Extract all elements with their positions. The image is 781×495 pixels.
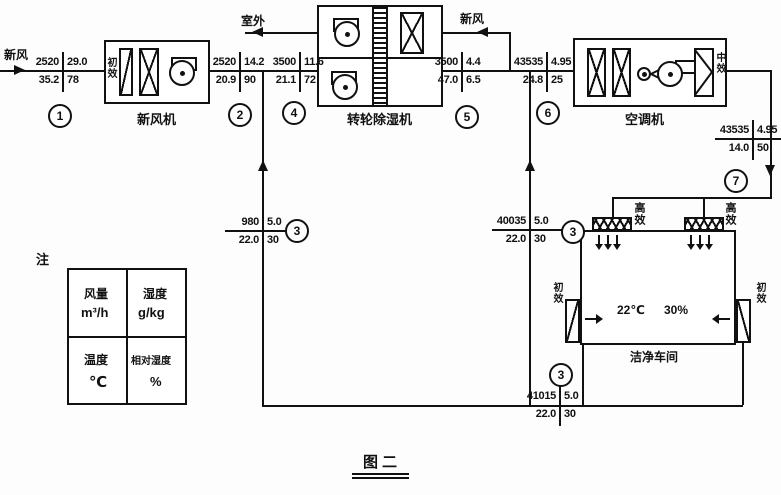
hepa-filter-label: 高效 [633, 202, 645, 226]
legend-row-divider [67, 336, 187, 338]
airflow-right-icon [585, 318, 596, 320]
value-divider [559, 386, 561, 426]
airflow-down-icon [699, 235, 701, 244]
legend-humidity-unit: g/kg [138, 305, 165, 320]
duct-ahu-outlet [727, 70, 772, 72]
arrow-down-icon [765, 165, 775, 176]
humidity-value: 29.0 [67, 56, 115, 68]
value-divider [752, 120, 754, 160]
temperature-value: 14.0 [701, 142, 749, 154]
airflow-down-icon [690, 235, 692, 244]
desiccant-wheel-icon [372, 5, 388, 107]
duct-drop-hepa-2 [703, 199, 705, 217]
humidity-value: 4.95 [757, 124, 781, 136]
airflow-down-icon [708, 235, 710, 244]
humidity-value: 5.0 [564, 390, 612, 402]
legend-airflow-unit: m³/h [81, 305, 108, 320]
pre-filter-label: 初效 [550, 282, 562, 304]
outdoor-exhaust-label: 室外 [241, 12, 265, 29]
airflow-left-icon [719, 318, 730, 320]
rotary-dehumidifier-label: 转轮除湿机 [347, 109, 412, 128]
legend-humidity-label: 湿度 [143, 285, 167, 302]
measurement-point-1: 2520 29.0 35.2 78 [11, 55, 115, 89]
point-circle-2: 2 [228, 103, 252, 127]
airflow-value: 980 [211, 216, 259, 228]
airflow-value: 43535 [701, 124, 749, 136]
value-divider [239, 52, 241, 92]
temperature-value: 21.1 [248, 74, 296, 86]
rh-value: 72 [304, 74, 352, 86]
duct-supply-header [612, 197, 772, 199]
hepa-filter-icon [592, 217, 632, 231]
temperature-value: 22.0 [478, 233, 526, 245]
airflow-value: 3500 [248, 56, 296, 68]
airflow-value: 3500 [410, 56, 458, 68]
point-circle-5: 5 [455, 105, 479, 129]
airflow-value: 2520 [11, 56, 59, 68]
title-underline [352, 477, 409, 479]
pre-filter-icon [565, 299, 580, 343]
point-circle-4: 4 [282, 101, 306, 125]
room-temperature-value: 22℃ [617, 303, 645, 317]
hepa-filter-label: 高效 [724, 202, 736, 226]
measurement-point-6: 43535 4.95 24.8 25 [495, 55, 599, 89]
point-circle-3-left: 3 [285, 219, 309, 243]
arrow-up-icon [525, 160, 535, 171]
cooling-coil-icon [139, 48, 159, 96]
legend-temperature-unit: ℃ [89, 373, 107, 391]
airflow-value: 2520 [188, 56, 236, 68]
duct-room-return-right [742, 343, 744, 405]
airflow-value: 41015 [508, 390, 556, 402]
regen-heater-coil-icon [400, 12, 424, 54]
temperature-value: 35.2 [11, 74, 59, 86]
measurement-point-3-bottom: 41015 5.0 22.0 30 [508, 389, 612, 423]
measurement-point-4: 3500 11.6 21.1 72 [248, 55, 352, 89]
pre-filter-icon [119, 48, 133, 96]
fan-icon [334, 21, 360, 47]
airflow-down-icon [607, 235, 609, 244]
value-bar [715, 138, 781, 140]
clean-room-label: 洁净车间 [630, 348, 678, 365]
point-circle-7: 7 [724, 169, 748, 193]
pre-filter-icon [736, 299, 751, 343]
temperature-value: 24.8 [495, 74, 543, 86]
rh-value: 25 [551, 74, 599, 86]
room-humidity-value: 30% [664, 303, 688, 317]
value-bar [492, 229, 568, 231]
temperature-value: 20.9 [188, 74, 236, 86]
hepa-filter-icon [684, 217, 724, 231]
figure-title: 图二 [363, 451, 401, 472]
humidity-value: 4.95 [551, 56, 599, 68]
pre-filter-label: 初效 [753, 282, 765, 304]
fresh-air-unit-label: 新风机 [137, 109, 176, 128]
point-circle-3-bottom: 3 [549, 363, 573, 387]
point-circle-6: 6 [536, 101, 560, 125]
fan-icon [657, 61, 683, 87]
rh-value: 78 [67, 74, 115, 86]
airflow-value: 40035 [478, 215, 526, 227]
value-divider [546, 52, 548, 92]
temperature-value: 22.0 [211, 234, 259, 246]
air-conditioner-label: 空调机 [625, 109, 664, 128]
duct-return-main [262, 405, 743, 407]
point-circle-1: 1 [48, 104, 72, 128]
value-divider [62, 52, 64, 92]
hvac-schematic-diagram: 新风 室外 新风 初效 新风机 转轮除湿机 中效 空调机 高效 高效 2 [0, 0, 781, 495]
legend-rh-unit: % [150, 374, 162, 389]
value-divider [299, 52, 301, 92]
airflow-down-icon [616, 235, 618, 244]
legend-airflow-label: 风量 [84, 285, 108, 302]
temperature-value: 22.0 [508, 408, 556, 420]
duct-drop-hepa-1 [612, 199, 614, 217]
airflow-value: 43535 [495, 56, 543, 68]
measurement-point-7: 43535 4.95 14.0 50 [701, 123, 781, 157]
rh-value: 50 [757, 142, 781, 154]
title-underline [352, 473, 409, 475]
arrow-up-icon [258, 160, 268, 171]
legend-rh-label: 相对湿度 [131, 352, 171, 367]
point-circle-3-middle: 3 [561, 220, 585, 244]
temperature-value: 47.0 [410, 74, 458, 86]
humidity-value: 11.6 [304, 56, 352, 68]
medium-filter-icon [694, 48, 714, 97]
airflow-down-icon [598, 235, 600, 244]
note-label: 注 [36, 249, 49, 268]
arrow-left-icon [477, 27, 488, 37]
rh-value: 30 [564, 408, 612, 420]
coil-icon [612, 48, 631, 97]
value-divider [461, 52, 463, 92]
regen-fresh-air-label: 新风 [460, 10, 484, 27]
medium-filter-label: 中效 [713, 52, 725, 74]
legend-temperature-label: 温度 [84, 351, 108, 368]
